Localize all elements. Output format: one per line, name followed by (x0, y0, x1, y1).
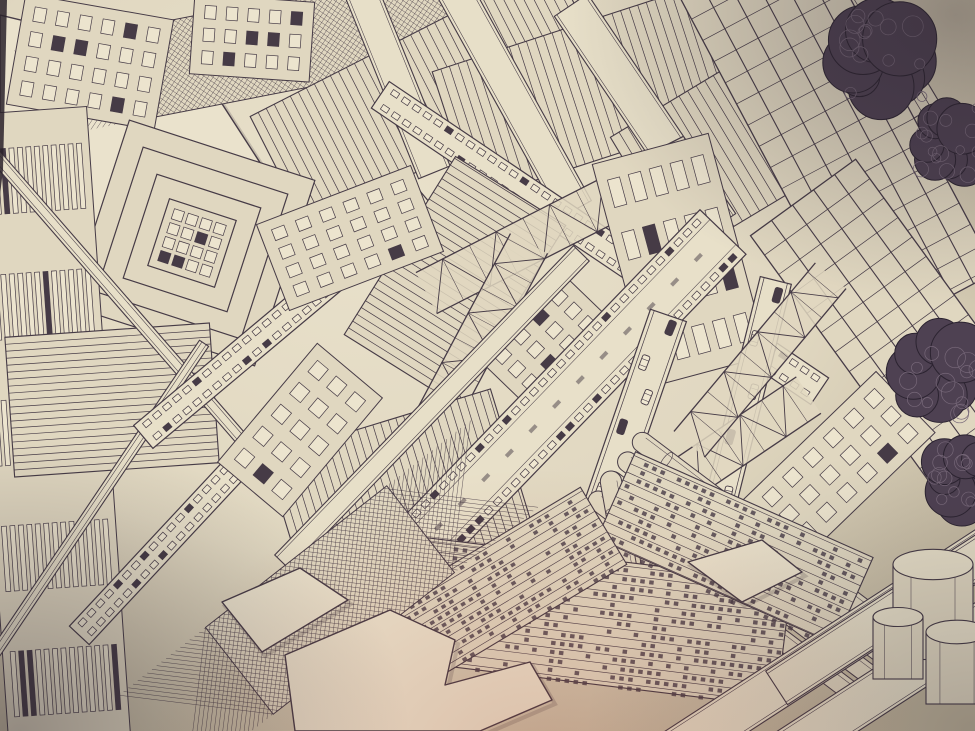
storage-tank (873, 608, 923, 680)
ink-city-photo (0, 0, 975, 731)
storage-tank (926, 620, 975, 704)
city-ink-drawing (0, 0, 975, 731)
building-facade (189, 0, 314, 82)
